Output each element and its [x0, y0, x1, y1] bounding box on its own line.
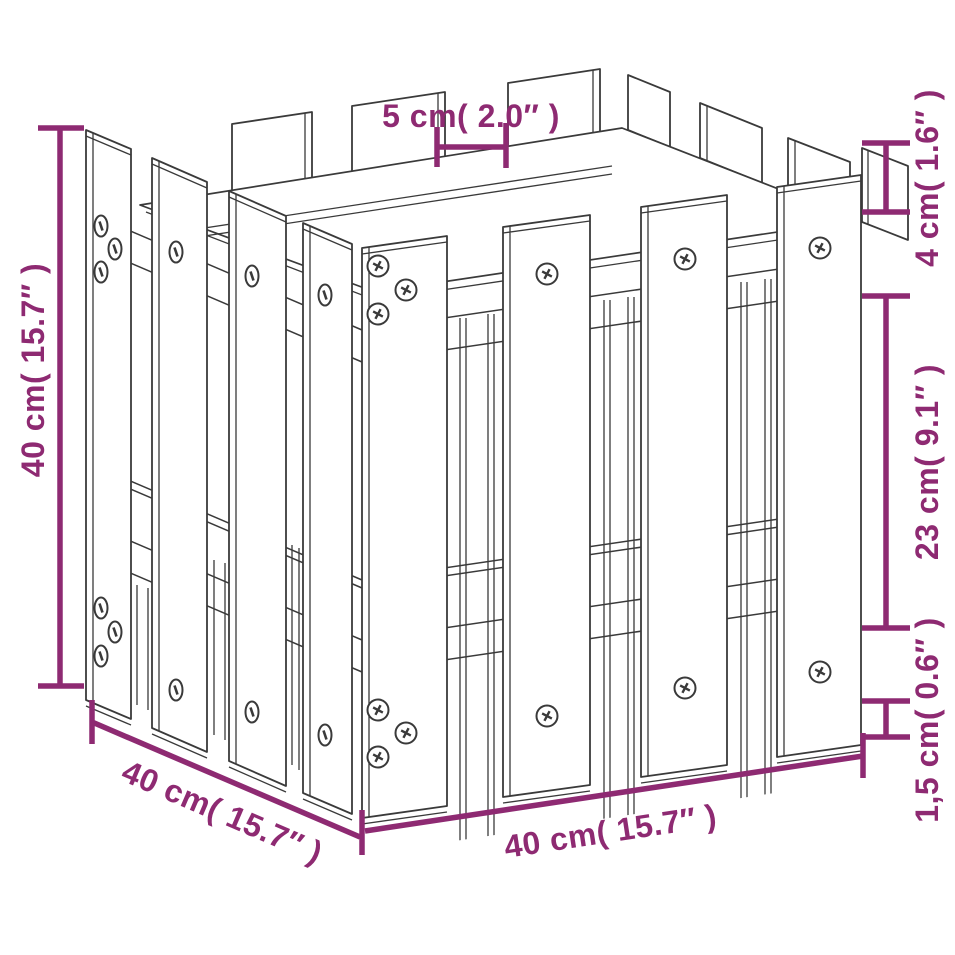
- diagram-canvas: 5 cm( 2.0″ ) 40 cm( 15.7″ ) 4 cm( 1.6″ )…: [0, 0, 955, 955]
- dim-label-right-base: 1,5 cm( 0.6″ ): [909, 617, 945, 823]
- dim-line-right-base: [862, 701, 910, 737]
- front-face-pickets: [362, 175, 861, 824]
- dim-line-right-board: [862, 296, 910, 628]
- planter-dimension-diagram: 5 cm( 2.0″ ) 40 cm( 15.7″ ) 4 cm( 1.6″ )…: [0, 0, 955, 955]
- dim-label-right-picket-top: 4 cm( 1.6″ ): [909, 89, 945, 267]
- dim-label-left-height: 40 cm( 15.7″ ): [15, 263, 51, 477]
- dim-label-top-gap: 5 cm( 2.0″ ): [382, 98, 560, 134]
- dim-label-right-board: 23 cm( 9.1″ ): [909, 364, 945, 560]
